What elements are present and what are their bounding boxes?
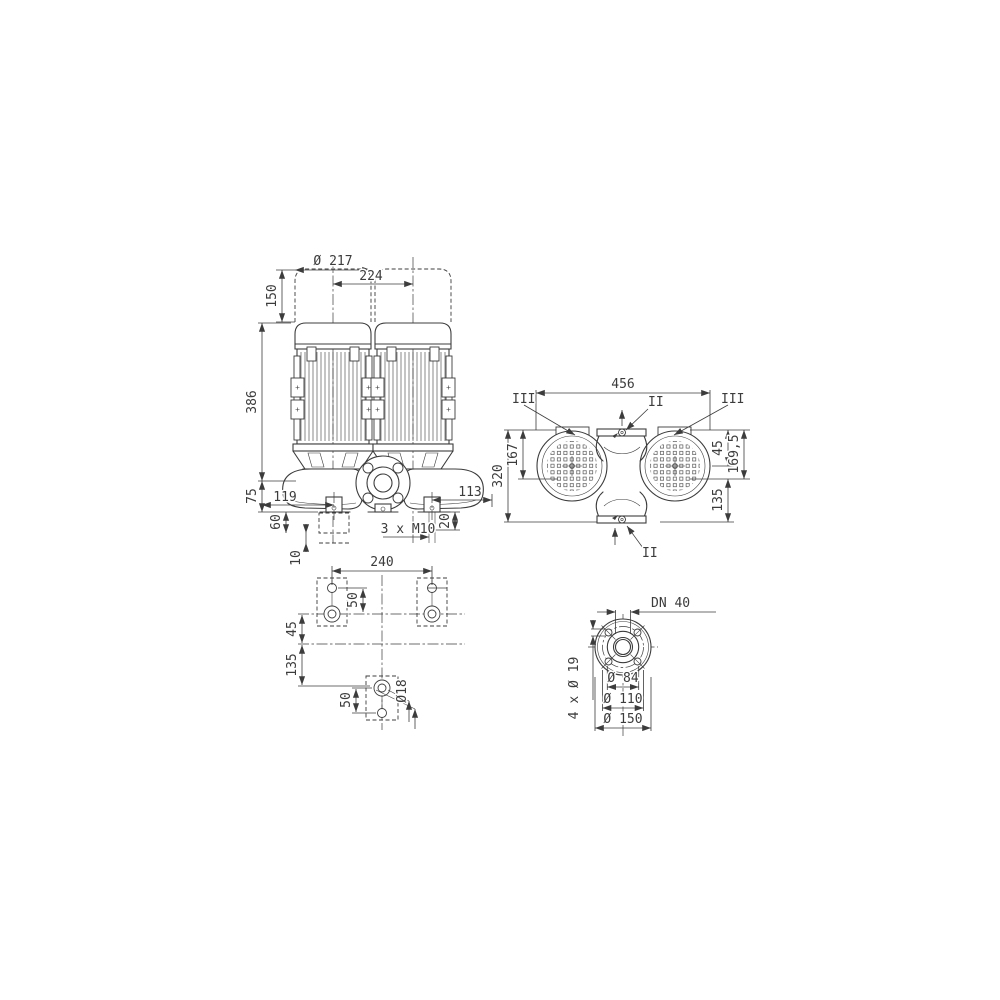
section-label-right: III — [721, 392, 744, 407]
dim-pair-offset-bottom: 50 — [339, 692, 354, 708]
top-dimensions: 456 320 167 45 169,5 135 III III II II — [491, 377, 750, 561]
dim-row-offset: 135 — [285, 653, 300, 676]
port-label-bottom: II — [642, 546, 658, 561]
dim-edge-to-foot-plane: 169,5 — [727, 434, 742, 473]
center-flange — [356, 456, 410, 510]
top-view: 456 320 167 45 169,5 135 III III II II — [491, 377, 750, 561]
section-label-left: III — [512, 392, 535, 407]
dim-hole-diameter: Ø18 — [395, 679, 410, 702]
dim-axis-offset: 45 — [285, 621, 300, 637]
dim-foot-thread: 3 x M10 — [381, 522, 436, 537]
dim-thread-depth: 20 — [438, 513, 453, 529]
dim-foot-offset-left: 119 — [273, 490, 296, 505]
dim-bolt-circle: Ø 110 — [603, 692, 642, 707]
footprint-view: 240 50 45 135 50 Ø18 — [285, 555, 465, 730]
dim-motor-diameter: Ø 217 — [313, 254, 352, 269]
pump-dimensional-drawing: Ø 217 224 150 386 75 119 113 60 10 20 3 … — [0, 0, 1000, 1000]
dim-overall-depth: 320 — [491, 464, 506, 487]
dim-pilot-diameter: Ø 84 — [607, 671, 638, 686]
dim-base-to-pad-bottom: 60 — [269, 514, 284, 530]
drawing-canvas: Ø 217 224 150 386 75 119 113 60 10 20 3 … — [0, 0, 1000, 1000]
dim-axis-to-base: 75 — [245, 488, 260, 504]
dim-pad-step: 10 — [289, 550, 304, 566]
front-view: Ø 217 224 150 386 75 119 113 60 10 20 3 … — [245, 254, 492, 566]
port-label-top: II — [648, 395, 664, 410]
footprint-geometry — [298, 575, 465, 730]
dim-motor-spacing: 224 — [359, 269, 383, 284]
top-assembly — [537, 410, 710, 545]
dim-edge-to-axis: 45 — [711, 440, 726, 456]
dim-pair-offset-top: 50 — [346, 592, 361, 608]
dim-outer-diameter: Ø 150 — [603, 712, 642, 727]
dim-foot-offset-right: 113 — [458, 485, 481, 500]
dim-bolt-spacing: 240 — [370, 555, 393, 570]
dim-overall-width: 456 — [611, 377, 634, 392]
dim-face-to-axis: 167 — [506, 443, 521, 466]
flange-view: DN 40 4 x Ø 19 Ø 84 Ø 110 Ø 150 — [567, 596, 716, 738]
dim-axis-to-motor-top: 386 — [245, 390, 260, 413]
dim-bolt-holes: 4 x Ø 19 — [567, 657, 582, 720]
dim-foot-plane-to-back: 135 — [711, 488, 726, 511]
dim-nominal: DN 40 — [651, 596, 690, 611]
dim-dismantling-space: 150 — [265, 284, 280, 307]
